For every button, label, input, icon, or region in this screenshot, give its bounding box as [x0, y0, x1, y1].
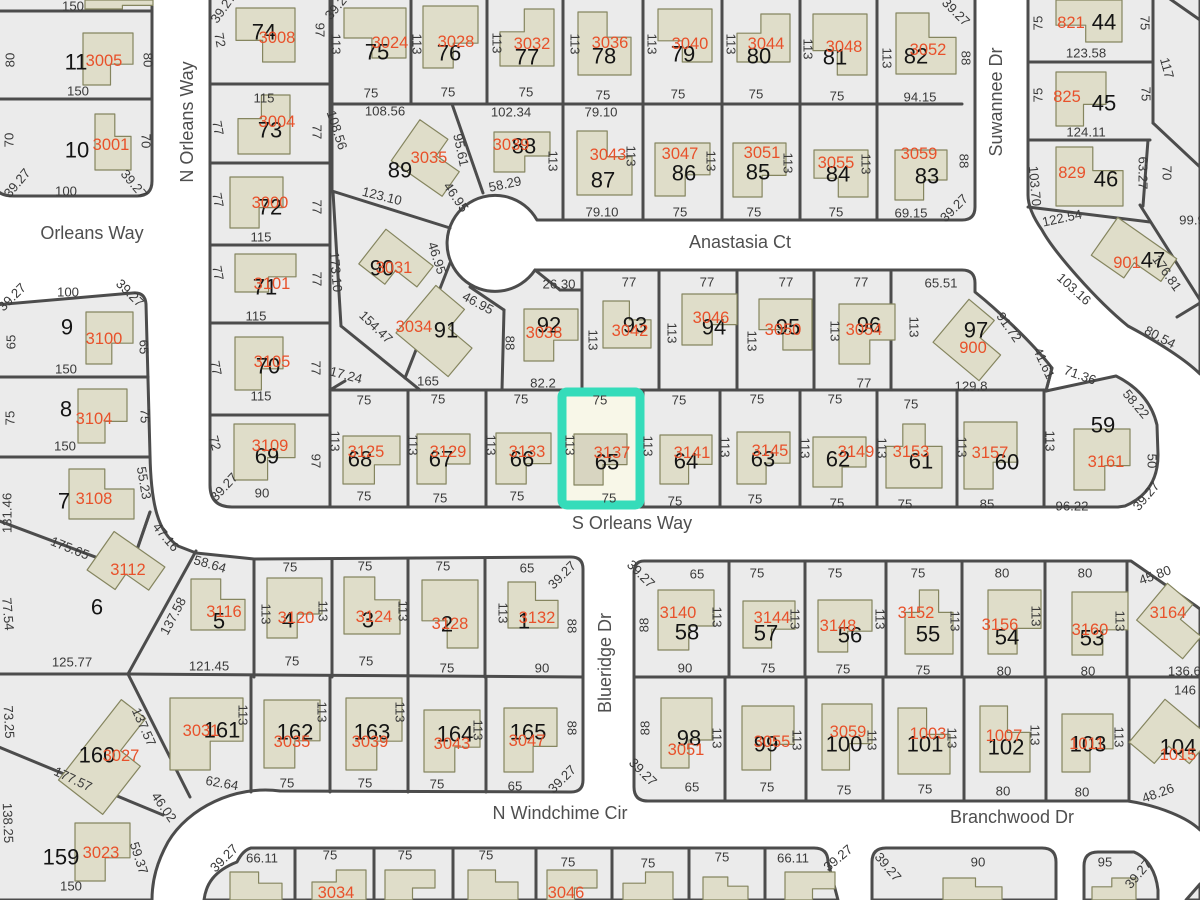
- svg-text:50: 50: [1145, 454, 1160, 469]
- svg-text:75: 75: [440, 661, 455, 676]
- svg-text:75: 75: [760, 780, 775, 795]
- svg-text:75: 75: [748, 492, 763, 507]
- svg-text:7: 7: [58, 489, 70, 514]
- svg-text:3100: 3100: [86, 330, 123, 348]
- svg-text:65: 65: [520, 561, 535, 576]
- svg-text:113: 113: [490, 32, 505, 53]
- svg-text:113: 113: [865, 729, 880, 750]
- svg-text:90: 90: [971, 855, 986, 870]
- svg-text:70: 70: [1160, 166, 1175, 181]
- svg-text:115: 115: [253, 91, 274, 106]
- svg-text:73.25: 73.25: [1, 705, 18, 739]
- svg-text:113: 113: [1113, 610, 1128, 631]
- svg-text:Orleans Way: Orleans Way: [40, 223, 143, 243]
- svg-text:115: 115: [250, 230, 271, 245]
- svg-text:N Windchime Cir: N Windchime Cir: [492, 803, 627, 823]
- svg-text:75: 75: [1031, 88, 1046, 103]
- svg-text:70: 70: [2, 133, 17, 148]
- svg-text:108.56: 108.56: [365, 104, 405, 119]
- svg-text:75: 75: [918, 782, 933, 797]
- svg-text:77: 77: [779, 275, 794, 290]
- svg-text:10: 10: [65, 138, 89, 163]
- svg-text:75: 75: [672, 393, 687, 408]
- svg-text:115: 115: [245, 309, 266, 324]
- svg-text:77: 77: [209, 119, 226, 136]
- svg-text:3048: 3048: [826, 38, 863, 56]
- svg-text:113: 113: [393, 701, 408, 722]
- svg-text:3101: 3101: [254, 275, 291, 293]
- svg-text:77: 77: [700, 275, 715, 290]
- svg-text:80: 80: [3, 53, 18, 68]
- svg-text:90: 90: [255, 486, 270, 501]
- svg-text:3040: 3040: [672, 35, 709, 53]
- svg-text:3039: 3039: [352, 733, 389, 751]
- svg-text:75: 75: [828, 392, 843, 407]
- svg-text:3125: 3125: [348, 443, 385, 461]
- svg-text:1007: 1007: [986, 727, 1023, 745]
- svg-text:3152: 3152: [898, 604, 935, 622]
- svg-text:75: 75: [280, 776, 295, 791]
- svg-text:113: 113: [718, 436, 733, 457]
- svg-text:100: 100: [55, 184, 77, 199]
- svg-text:88: 88: [959, 51, 974, 66]
- svg-text:80: 80: [1081, 664, 1096, 679]
- svg-text:159: 159: [43, 845, 80, 870]
- svg-text:3160: 3160: [1072, 621, 1109, 639]
- svg-text:113: 113: [315, 701, 330, 722]
- svg-text:121.45: 121.45: [189, 659, 229, 674]
- svg-text:75: 75: [430, 777, 445, 792]
- svg-text:66.11: 66.11: [246, 851, 278, 866]
- svg-text:113: 113: [396, 600, 411, 621]
- svg-text:102.34: 102.34: [491, 105, 531, 120]
- svg-text:113: 113: [1028, 724, 1043, 745]
- svg-text:3054: 3054: [846, 321, 883, 339]
- svg-text:11: 11: [65, 50, 88, 75]
- svg-text:3112: 3112: [110, 561, 145, 579]
- svg-text:113: 113: [1029, 605, 1044, 626]
- svg-text:3034: 3034: [318, 884, 355, 900]
- svg-text:113: 113: [828, 320, 843, 341]
- svg-text:65: 65: [508, 779, 523, 794]
- svg-text:75: 75: [436, 559, 451, 574]
- svg-text:3034: 3034: [396, 318, 433, 336]
- svg-text:88: 88: [957, 154, 972, 169]
- svg-text:63.27: 63.27: [1136, 156, 1151, 189]
- svg-text:94.15: 94.15: [903, 90, 936, 105]
- svg-text:113: 113: [1112, 726, 1127, 747]
- svg-text:99.9: 99.9: [1179, 213, 1200, 228]
- svg-text:9: 9: [61, 315, 73, 340]
- svg-text:150: 150: [67, 84, 89, 99]
- svg-text:131.46: 131.46: [0, 493, 15, 533]
- svg-text:3132: 3132: [519, 609, 556, 627]
- svg-text:75: 75: [357, 489, 372, 504]
- svg-text:75: 75: [602, 491, 617, 506]
- svg-text:113: 113: [406, 434, 421, 455]
- svg-text:3051: 3051: [668, 741, 705, 759]
- svg-text:3129: 3129: [430, 443, 467, 461]
- svg-text:165: 165: [417, 374, 439, 389]
- svg-text:26.30: 26.30: [542, 277, 575, 292]
- svg-text:113: 113: [586, 329, 601, 350]
- svg-text:77: 77: [310, 125, 325, 140]
- svg-text:75: 75: [479, 848, 494, 863]
- svg-text:3031: 3031: [183, 722, 220, 740]
- svg-text:1003: 1003: [910, 725, 947, 743]
- svg-text:113: 113: [563, 434, 578, 455]
- svg-text:59: 59: [1091, 413, 1115, 438]
- svg-text:75: 75: [359, 654, 374, 669]
- svg-text:46: 46: [1094, 167, 1118, 192]
- svg-text:113: 113: [781, 152, 796, 173]
- svg-text:75: 75: [749, 87, 764, 102]
- svg-text:150: 150: [54, 439, 76, 454]
- svg-text:3128: 3128: [432, 615, 469, 633]
- svg-text:113: 113: [955, 436, 970, 457]
- svg-text:3036: 3036: [592, 34, 629, 52]
- svg-text:65: 65: [685, 780, 700, 795]
- svg-text:75: 75: [641, 856, 656, 871]
- svg-text:Blueridge Dr: Blueridge Dr: [595, 613, 615, 713]
- svg-text:69.15: 69.15: [894, 206, 927, 221]
- svg-text:88: 88: [503, 336, 518, 351]
- svg-text:3047: 3047: [509, 732, 546, 750]
- svg-text:113: 113: [798, 437, 813, 458]
- svg-text:113: 113: [880, 47, 895, 68]
- svg-text:113: 113: [875, 437, 890, 458]
- svg-text:95: 95: [1098, 855, 1113, 870]
- svg-text:75: 75: [358, 559, 373, 574]
- svg-text:75: 75: [357, 393, 372, 408]
- svg-text:115: 115: [250, 389, 271, 404]
- svg-text:75: 75: [898, 497, 913, 512]
- svg-text:75: 75: [828, 566, 843, 581]
- svg-text:77: 77: [857, 376, 872, 391]
- svg-text:75: 75: [1139, 87, 1154, 102]
- svg-text:82.2: 82.2: [530, 376, 556, 391]
- svg-text:75: 75: [830, 496, 845, 511]
- svg-text:80: 80: [995, 566, 1010, 581]
- svg-text:3137: 3137: [594, 444, 631, 462]
- svg-text:3052: 3052: [910, 41, 947, 59]
- svg-text:113: 113: [907, 316, 922, 337]
- svg-text:79.10: 79.10: [584, 105, 617, 120]
- svg-text:80: 80: [1075, 785, 1090, 800]
- svg-text:97: 97: [309, 454, 324, 469]
- svg-text:3055: 3055: [754, 733, 791, 751]
- svg-text:113: 113: [329, 33, 344, 54]
- svg-text:3005: 3005: [86, 52, 123, 70]
- svg-text:3161: 3161: [1088, 453, 1125, 471]
- svg-text:113: 113: [724, 33, 739, 54]
- svg-text:3028: 3028: [438, 33, 475, 51]
- svg-text:3116: 3116: [206, 603, 241, 621]
- svg-text:75: 75: [911, 566, 926, 581]
- svg-text:146: 146: [1174, 683, 1196, 698]
- svg-text:113: 113: [948, 610, 963, 631]
- svg-text:80: 80: [997, 664, 1012, 679]
- svg-text:3108: 3108: [76, 490, 113, 508]
- svg-text:113: 113: [484, 434, 499, 455]
- svg-text:138.25: 138.25: [0, 803, 16, 844]
- svg-text:3042: 3042: [612, 322, 649, 340]
- svg-text:3032: 3032: [514, 35, 551, 53]
- svg-text:75: 75: [1138, 16, 1153, 31]
- svg-text:123.58: 123.58: [1066, 46, 1106, 61]
- svg-text:3038: 3038: [526, 324, 563, 342]
- svg-text:3055: 3055: [818, 154, 855, 172]
- svg-text:124.11: 124.11: [1066, 125, 1105, 140]
- svg-text:75: 75: [715, 850, 730, 865]
- svg-text:3145: 3145: [752, 442, 789, 460]
- svg-text:77: 77: [622, 275, 637, 290]
- svg-text:75: 75: [668, 494, 683, 509]
- svg-text:96.22: 96.22: [1055, 499, 1088, 514]
- svg-text:75: 75: [1031, 16, 1046, 31]
- svg-text:3109: 3109: [252, 437, 289, 455]
- svg-text:91: 91: [434, 318, 458, 343]
- svg-text:75: 75: [830, 89, 845, 104]
- svg-text:89: 89: [388, 158, 412, 183]
- svg-text:Suwannee Dr: Suwannee Dr: [986, 47, 1006, 156]
- svg-text:65: 65: [690, 567, 705, 582]
- svg-text:75: 75: [761, 661, 776, 676]
- svg-text:75: 75: [283, 560, 298, 575]
- svg-text:75: 75: [138, 409, 153, 424]
- svg-text:58: 58: [675, 620, 699, 645]
- svg-text:3148: 3148: [820, 617, 857, 635]
- svg-text:3141: 3141: [674, 444, 711, 462]
- svg-text:901: 901: [1113, 254, 1141, 272]
- svg-text:N Orleans Way: N Orleans Way: [177, 61, 197, 182]
- svg-text:129.8: 129.8: [954, 379, 987, 394]
- svg-text:3043: 3043: [434, 735, 471, 753]
- svg-text:8: 8: [60, 397, 72, 422]
- svg-text:77: 77: [854, 275, 869, 290]
- svg-text:113: 113: [745, 330, 760, 351]
- svg-text:66.11: 66.11: [777, 851, 809, 866]
- svg-text:75: 75: [671, 87, 686, 102]
- svg-text:77.54: 77.54: [0, 597, 17, 631]
- svg-text:3124: 3124: [356, 608, 393, 626]
- svg-text:1015: 1015: [1160, 746, 1197, 764]
- svg-text:75: 75: [431, 392, 446, 407]
- svg-text:3140: 3140: [660, 604, 697, 622]
- svg-text:75: 75: [750, 566, 765, 581]
- svg-text:113: 113: [316, 600, 331, 621]
- svg-text:88: 88: [565, 619, 580, 634]
- svg-text:3105: 3105: [254, 353, 291, 371]
- svg-text:86: 86: [672, 161, 696, 186]
- svg-text:150: 150: [60, 879, 82, 894]
- svg-text:55: 55: [916, 622, 940, 647]
- svg-text:75: 75: [837, 783, 852, 798]
- svg-text:150: 150: [55, 362, 77, 377]
- svg-text:3031: 3031: [376, 259, 413, 277]
- svg-text:3043: 3043: [590, 146, 627, 164]
- svg-text:113: 113: [259, 603, 274, 624]
- svg-text:113: 113: [859, 153, 874, 174]
- svg-text:72: 72: [211, 31, 228, 48]
- svg-text:3046: 3046: [548, 884, 585, 900]
- svg-text:6: 6: [91, 595, 103, 620]
- svg-text:113: 113: [665, 322, 680, 343]
- svg-text:3001: 3001: [93, 136, 130, 154]
- svg-text:85: 85: [746, 160, 770, 185]
- svg-text:113: 113: [236, 704, 251, 725]
- svg-text:3059: 3059: [901, 145, 938, 163]
- svg-text:113: 113: [496, 602, 511, 623]
- svg-text:88: 88: [638, 721, 653, 736]
- svg-text:77: 77: [207, 359, 224, 376]
- svg-text:3023: 3023: [83, 844, 120, 862]
- svg-text:3051: 3051: [744, 144, 781, 162]
- svg-text:113: 113: [568, 33, 583, 54]
- svg-text:Anastasia Ct: Anastasia Ct: [689, 232, 791, 252]
- svg-text:75: 75: [916, 663, 931, 678]
- svg-text:65: 65: [4, 335, 19, 350]
- svg-text:113: 113: [328, 430, 343, 451]
- svg-text:3157: 3157: [972, 444, 1009, 462]
- svg-text:136.60: 136.60: [1168, 664, 1200, 679]
- svg-text:75: 75: [836, 662, 851, 677]
- svg-text:75: 75: [323, 848, 338, 863]
- svg-text:97: 97: [313, 23, 328, 38]
- svg-text:100: 100: [57, 285, 79, 300]
- svg-text:70: 70: [139, 134, 154, 149]
- svg-text:75: 75: [514, 392, 529, 407]
- svg-text:75: 75: [441, 85, 456, 100]
- svg-text:S Orleans Way: S Orleans Way: [572, 513, 692, 533]
- svg-text:80: 80: [141, 53, 156, 68]
- svg-text:75: 75: [593, 393, 608, 408]
- svg-text:77: 77: [209, 264, 226, 281]
- svg-text:113: 113: [624, 145, 639, 166]
- svg-text:Branchwood Dr: Branchwood Dr: [950, 807, 1074, 827]
- svg-text:1011: 1011: [1069, 735, 1104, 753]
- svg-text:75: 75: [561, 855, 576, 870]
- svg-text:113: 113: [471, 719, 486, 740]
- svg-text:113: 113: [1043, 430, 1058, 451]
- svg-text:900: 900: [959, 339, 987, 357]
- svg-text:75: 75: [829, 205, 844, 220]
- svg-text:113: 113: [710, 606, 725, 627]
- svg-text:3104: 3104: [76, 410, 113, 428]
- svg-text:113: 113: [645, 33, 660, 54]
- svg-text:113: 113: [790, 729, 805, 750]
- svg-text:3153: 3153: [893, 443, 930, 461]
- svg-text:77: 77: [209, 191, 226, 208]
- svg-text:75: 75: [285, 654, 300, 669]
- svg-text:75: 75: [398, 848, 413, 863]
- svg-text:77: 77: [310, 272, 325, 287]
- svg-text:3008: 3008: [259, 29, 296, 47]
- svg-text:113: 113: [546, 150, 561, 171]
- svg-text:75: 75: [747, 205, 762, 220]
- svg-text:88: 88: [637, 618, 652, 633]
- svg-text:125.77: 125.77: [52, 655, 92, 670]
- svg-text:90: 90: [535, 661, 550, 676]
- svg-text:3059: 3059: [830, 723, 867, 741]
- svg-text:90: 90: [678, 661, 693, 676]
- svg-text:85: 85: [980, 497, 995, 512]
- svg-text:113: 113: [410, 33, 425, 54]
- svg-text:87: 87: [591, 168, 615, 193]
- svg-text:65.51: 65.51: [924, 276, 957, 291]
- svg-text:75: 75: [904, 397, 919, 412]
- svg-text:3039: 3039: [493, 136, 530, 154]
- svg-text:3035: 3035: [274, 733, 311, 751]
- svg-text:83: 83: [915, 164, 939, 189]
- svg-text:75: 75: [750, 392, 765, 407]
- svg-text:45: 45: [1092, 91, 1116, 116]
- svg-text:3144: 3144: [754, 609, 791, 627]
- svg-text:3120: 3120: [278, 609, 315, 627]
- svg-text:113: 113: [704, 150, 719, 171]
- svg-text:75: 75: [358, 776, 373, 791]
- svg-text:75: 75: [364, 86, 379, 101]
- svg-text:113: 113: [945, 727, 960, 748]
- svg-text:75: 75: [510, 489, 525, 504]
- svg-text:3027: 3027: [103, 747, 140, 765]
- svg-text:3156: 3156: [982, 616, 1019, 634]
- svg-text:3047: 3047: [662, 145, 699, 163]
- svg-text:44: 44: [1092, 10, 1116, 35]
- svg-text:75: 75: [3, 411, 18, 426]
- svg-text:113: 113: [801, 38, 816, 59]
- svg-text:3164: 3164: [1150, 604, 1187, 622]
- svg-text:3024: 3024: [372, 34, 409, 52]
- svg-text:77: 77: [309, 361, 324, 376]
- svg-text:3149: 3149: [838, 443, 875, 461]
- svg-text:80: 80: [996, 784, 1011, 799]
- svg-text:3000: 3000: [252, 194, 289, 212]
- svg-text:75: 75: [519, 85, 534, 100]
- svg-text:88: 88: [565, 721, 580, 736]
- svg-text:77: 77: [310, 200, 325, 215]
- svg-text:79.10: 79.10: [585, 205, 618, 220]
- svg-text:3035: 3035: [411, 149, 448, 167]
- svg-text:113: 113: [641, 435, 656, 456]
- svg-text:3050: 3050: [765, 321, 802, 339]
- svg-text:113: 113: [788, 608, 803, 629]
- svg-text:3044: 3044: [748, 35, 785, 53]
- svg-text:150: 150: [62, 0, 84, 14]
- svg-text:75: 75: [673, 205, 688, 220]
- svg-text:113: 113: [710, 727, 725, 748]
- svg-text:75: 75: [433, 491, 448, 506]
- svg-text:821: 821: [1057, 14, 1085, 32]
- svg-text:825: 825: [1053, 88, 1081, 106]
- svg-text:3004: 3004: [259, 113, 296, 131]
- svg-text:829: 829: [1058, 164, 1086, 182]
- svg-text:75: 75: [596, 88, 611, 103]
- svg-text:80: 80: [1078, 566, 1093, 581]
- svg-text:3133: 3133: [509, 443, 546, 461]
- svg-text:113: 113: [873, 608, 888, 629]
- svg-text:3046: 3046: [693, 309, 730, 327]
- svg-text:65: 65: [137, 340, 152, 355]
